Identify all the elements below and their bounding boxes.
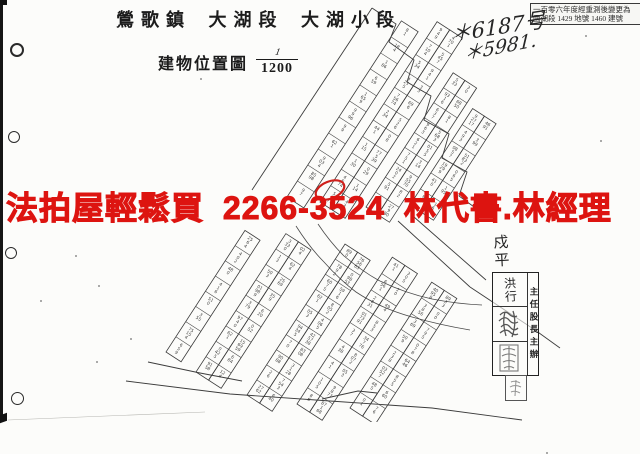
map-scale-fraction: 1 1200 — [256, 48, 298, 76]
parcel-number-scribble: 9996 — [346, 107, 359, 123]
parcel-number-scribble: 029 — [362, 165, 373, 177]
parcel-number-scribble: 620 — [256, 307, 267, 319]
parcel-number-scribble: 234 — [381, 108, 392, 120]
parcel-number-scribble: 621 — [313, 293, 324, 305]
parcel-number-scribble: 105 — [314, 377, 325, 391]
parcel-number-scribble: 99 — [339, 123, 347, 133]
seal-scribble-icon — [497, 309, 523, 339]
parcel-number-scribble: 941 — [424, 68, 435, 82]
parcel-number-scribble: 75674 — [389, 92, 402, 108]
parcel-number-scribble: 795 — [420, 327, 431, 341]
parcel-number-scribble: 637 — [430, 107, 441, 121]
parcel-number-scribble: 9740 — [231, 314, 244, 330]
parcel-number-scribble: 621 — [328, 139, 339, 151]
parcel-number-scribble: 4215 — [400, 75, 413, 91]
parcel-number-scribble: 696 — [404, 100, 415, 112]
parcel-number-scribble: 855 — [389, 374, 400, 388]
parcel-number-scribble: 37 — [348, 328, 356, 338]
parcel-number-scribble: 26 — [265, 369, 273, 379]
parcel-number-scribble: 94345 — [291, 323, 304, 339]
scan-speck — [96, 361, 98, 363]
parcel-number-scribble: 186 — [380, 59, 391, 71]
parcel-number-scribble: 2762 — [254, 384, 265, 396]
parcel-number-scribble: 08 — [384, 133, 392, 143]
parcel-number-scribble: 314 — [414, 158, 425, 170]
parcel-number-scribble: 684 — [226, 353, 237, 365]
punch-hole — [10, 43, 24, 57]
parcel-number-scribble: 156959 — [234, 338, 247, 354]
stamp-signature-cell: 洪行 — [493, 273, 527, 307]
parcel-number-scribble: 124 — [216, 369, 227, 381]
punch-hole — [11, 392, 24, 405]
stamp-approval-roles: 主任股長主辦 — [528, 287, 540, 362]
scan-speck — [600, 140, 602, 142]
parcel-number-scribble: 438 — [336, 343, 347, 355]
parcel-number-scribble: 640 — [267, 392, 278, 404]
parcel-number-scribble: 359 — [266, 292, 277, 304]
parcel-number-scribble: 402 — [233, 251, 244, 265]
resurvey-note-line1: 一百零六年度經重測後變更為 — [533, 5, 640, 14]
parcel-number-scribble: 494 — [381, 302, 392, 314]
parcel-number-scribble: 399 — [471, 136, 482, 148]
scanned-cadastral-map-page: { "header": { "title": "鶯歌鎮 大湖段 大湖小段" },… — [0, 0, 640, 422]
parcel-number-scribble: 659 — [369, 75, 380, 87]
parcel-number-scribble: 77539 — [370, 149, 383, 165]
parcel-number-scribble: 5916 — [333, 286, 346, 302]
parcel-number-scribble: 355 — [194, 311, 205, 323]
parcel-number-scribble: 115 — [360, 141, 371, 153]
parcel-number-scribble: 480 — [224, 265, 235, 277]
parcel-number-scribble: 7104 — [421, 43, 434, 59]
seal-impression-small — [505, 375, 527, 401]
parcel-number-scribble: 33 — [416, 84, 424, 94]
parcel-number-scribble: 949 — [433, 27, 444, 41]
parcel-number-scribble: 3128 — [284, 362, 297, 378]
map-title: 建物位置圖 1 1200 — [158, 48, 298, 76]
parcel-number-scribble: 4691 — [481, 120, 492, 132]
parcel-number-scribble: 2569 — [276, 276, 287, 288]
parcel-number-scribble: 70 — [285, 339, 293, 349]
parcel-number-scribble: 81 — [402, 27, 410, 37]
parcel-number-scribble: 7543 — [274, 377, 287, 393]
parcel-number-scribble: 81 — [444, 114, 452, 124]
parcel-number-scribble: 751 — [401, 152, 412, 166]
parcel-number-scribble: 6446 — [401, 357, 412, 369]
stamp-roles-column: 主任股長主辦 — [527, 273, 540, 375]
parcel-number-scribble: 379 — [243, 299, 254, 311]
scan-speck — [585, 35, 587, 37]
parcel-number-scribble: 03527 — [375, 365, 388, 381]
punch-hole — [5, 247, 17, 259]
scan-faint-line — [8, 412, 205, 420]
parcel-number-scribble: 890 — [342, 248, 353, 260]
parcel-number-scribble: 2831 — [366, 294, 379, 310]
parcel-number-scribble: 493 — [458, 129, 469, 143]
parcel-number-scribble: 75154 — [182, 326, 195, 342]
parcel-number-scribble: 624 — [286, 261, 297, 273]
resurvey-note-line2: 國湖段 1429 地號 1460 建號 — [533, 14, 640, 23]
parcel-number-scribble: 510 — [204, 296, 215, 308]
scan-speck — [98, 285, 100, 287]
parcel-number-scribble: 00 — [432, 311, 440, 321]
parcel-number-scribble: 503 — [263, 268, 274, 280]
stamp-left-column: 洪行 — [493, 273, 527, 375]
stamp-signature: 洪行 — [501, 276, 520, 303]
parcel-number-scribble: 024 — [296, 246, 307, 258]
parcel-number-scribble: 5457 — [434, 51, 447, 67]
parcel-number-scribble: 8052 — [323, 301, 336, 317]
parcel-number-scribble: 3330 — [281, 238, 294, 254]
parcel-number-scribble: 441 — [370, 125, 381, 137]
parcel-band: 8610541438370173912831656141187168987705… — [297, 257, 417, 420]
approval-stamp-box: 洪行 主任股長主辦 — [492, 272, 539, 376]
scan-corner-mark — [0, 0, 7, 5]
parcel-number-scribble: 416 — [213, 281, 224, 295]
seal-impression — [493, 342, 527, 375]
parcel-number-scribble: 053 — [303, 308, 314, 320]
parcel-number-scribble: 963 — [420, 122, 431, 136]
parcel-number-scribble: 305 — [401, 271, 412, 285]
map-title-label: 建物位置圖 — [158, 50, 248, 74]
scan-edge-line — [0, 0, 3, 422]
parcel-number-scribble: 34776 — [357, 335, 370, 351]
parcel-number-scribble: 621 — [223, 330, 234, 342]
parcel-number-scribble: 526 — [392, 117, 403, 131]
parcel-number-scribble: 660 — [380, 389, 391, 401]
scan-speck — [75, 255, 77, 257]
parcel-number-scribble: 534 — [413, 59, 424, 71]
scan-speck — [40, 300, 42, 302]
scale-denominator: 1200 — [261, 62, 293, 76]
parcel-number-scribble: 053 — [338, 368, 349, 380]
scale-numerator: 1 — [273, 48, 280, 58]
parcel-number-scribble: 86 — [306, 393, 314, 403]
parcel-number-scribble: 8072 — [347, 351, 360, 367]
parcel-number-scribble: 8598 — [307, 171, 318, 183]
scan-speck — [130, 338, 132, 340]
foreclosure-ad-banner: 法拍屋輕鬆買 2266-3524 林代書.林經理 — [6, 183, 612, 229]
parcel-number-scribble: 659 — [173, 342, 184, 356]
parcel-number-scribble: 76 — [371, 405, 379, 415]
parcel-number-scribble: 621 — [410, 137, 421, 151]
parcel-number-scribble: 41 — [327, 360, 335, 370]
parcel-number-scribble: 9158 — [203, 361, 214, 373]
parcel-number-scribble: 238 — [387, 350, 398, 364]
parcel-number-scribble: 6075 — [320, 278, 333, 294]
parcel-number-scribble: 533 — [450, 76, 461, 88]
resurvey-note-box: 一百零六年度經重測後變更為 國湖段 1429 地號 1460 建號 — [530, 3, 640, 25]
parcel-number-scribble: 4065 — [313, 316, 326, 332]
parcel-number-scribble: 9088 — [274, 354, 285, 366]
parcel-number-scribble: 509 — [398, 334, 409, 346]
parcel-number-scribble: 052 — [246, 323, 257, 335]
parcel-number-scribble: 09853 — [343, 271, 356, 287]
parcel-number-scribble: 9034 — [315, 155, 328, 171]
punch-hole — [8, 131, 20, 143]
parcel-band: 659751543555104164804022564 — [166, 230, 260, 361]
parcel-number-scribble: 130 — [349, 157, 360, 169]
parcel-number-scribble: 30 — [463, 85, 471, 95]
parcel-number-scribble: 87168 — [315, 400, 328, 416]
parcel-number-scribble: 853 — [369, 320, 380, 334]
seal-scribble-icon — [508, 378, 524, 398]
parcel-number-scribble: 065 — [449, 169, 460, 183]
parcel-number-scribble: 425738 — [304, 332, 317, 348]
parcel-number-scribble: 0425 — [211, 345, 224, 361]
seal-impression — [493, 307, 527, 341]
parcel-number-scribble: 3856 — [416, 302, 429, 318]
parcel-number-scribble: 8308 — [296, 347, 307, 359]
parcel-number-scribble: 6850 — [452, 99, 463, 111]
scan-speck — [200, 78, 202, 80]
scale-fraction-bar — [256, 59, 298, 60]
seal-scribble-icon — [497, 343, 523, 373]
parcel-number-scribble: 1659 — [357, 91, 370, 107]
parcel-number-scribble: 01 — [359, 397, 367, 407]
parcel-number-scribble: 01989 — [251, 284, 264, 300]
section-title: 鶯歌鎮 大湖段 大湖小段 — [116, 6, 401, 32]
parcel-number-scribble: 369 — [409, 318, 420, 330]
parcel-number-scribble: 411 — [389, 262, 400, 274]
parcel-number-scribble: 2564 — [241, 235, 254, 251]
parcel-number-scribble: 485 — [368, 381, 379, 393]
parcel-number-scribble: 765663 — [353, 256, 366, 272]
parcel-number-scribble: 017391 — [355, 311, 368, 327]
parcel-number-scribble: 13 — [274, 254, 282, 264]
parcel-number-scribble: 20 — [393, 287, 401, 297]
stamp-handwritten-note: 戍平 — [491, 234, 511, 271]
parcel-number-scribble: 078 — [410, 342, 421, 356]
